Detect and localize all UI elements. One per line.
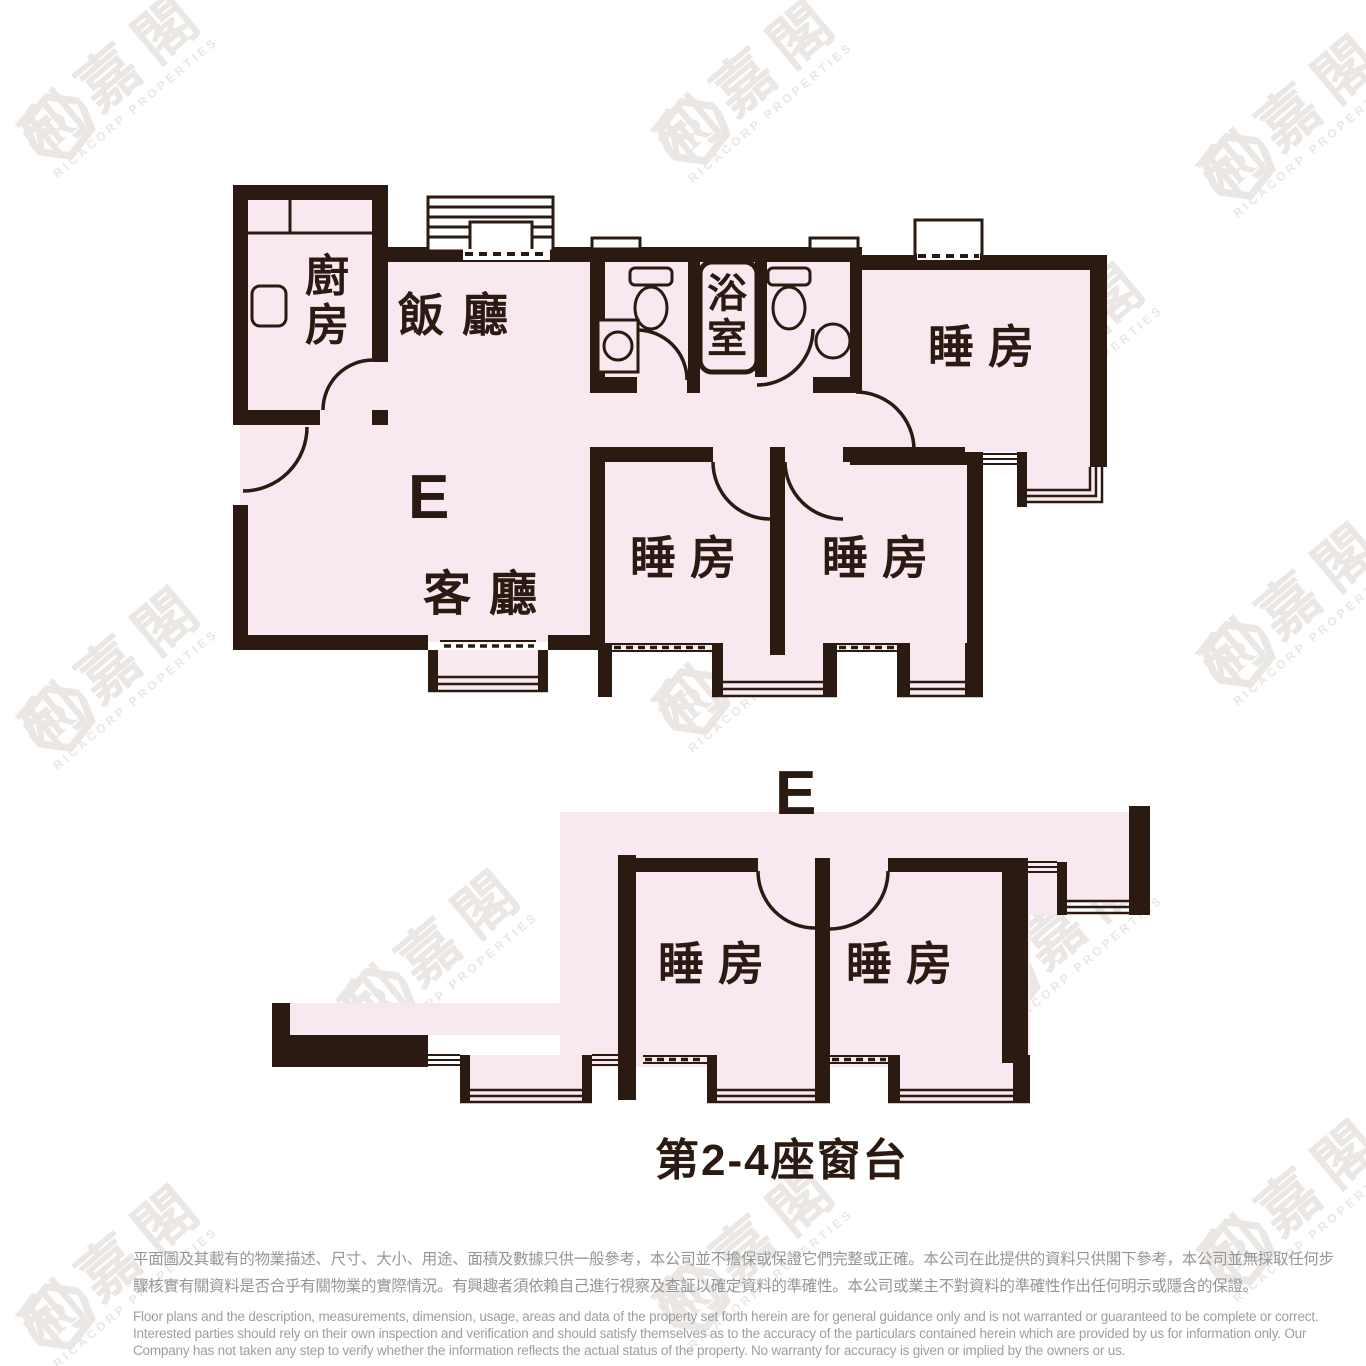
disclaimer-chinese-line-1: 平面圖及其載有的物業描述、尺寸、大小、用途、面積及數據只供一般參考，本公司並不擔… <box>133 1246 1313 1273</box>
toilet-bowl-right <box>773 287 805 329</box>
disclaimer-english-line-1: Floor plans and the description, measure… <box>133 1308 1313 1325</box>
disclaimer-chinese-line-2: 驟核實有關資料是否合乎有關物業的實際情況。有興趣者須依賴自己進行視察及查証以確定… <box>133 1273 1313 1300</box>
room-label-lower-bedroom-left: 睡房 <box>608 939 828 991</box>
floorplan-canvas: R 利嘉閣 RICACORP PROPERTIES R 利嘉閣 RICACORP… <box>0 0 1366 1366</box>
disclaimer-english-line-3: Company has not taken any step to verify… <box>133 1342 1313 1359</box>
sink-right <box>816 324 850 358</box>
unit-label-lower: E <box>775 758 816 829</box>
disclaimer: 平面圖及其載有的物業描述、尺寸、大小、用途、面積及數據只供一般參考，本公司並不擔… <box>133 1246 1313 1359</box>
room-label-living: 客廳 <box>379 568 599 622</box>
toilet-tank-left <box>630 268 672 285</box>
disclaimer-english-line-2: Interested parties should rely on their … <box>133 1325 1313 1342</box>
room-label-kitchen: 廚房 <box>305 252 355 351</box>
unit-label-upper: E <box>408 462 449 533</box>
plan-caption: 第2-4座窗台 <box>655 1124 909 1188</box>
toilet-tank-right <box>768 268 810 285</box>
room-label-bedroom-mid-right: 睡房 <box>772 533 992 585</box>
room-label-bedroom-mid-left: 睡房 <box>580 533 800 585</box>
room-label-lower-bedroom-right: 睡房 <box>796 939 1016 991</box>
toilet-bowl-left <box>635 287 667 329</box>
room-label-dining: 飯廳 <box>352 290 572 342</box>
room-label-bedroom-top-right: 睡房 <box>878 322 1098 374</box>
upper-plan <box>233 185 1107 697</box>
window-louvre <box>428 197 553 254</box>
room-label-bathroom: 浴室 <box>707 272 751 362</box>
kitchen-sink <box>252 286 286 326</box>
sink-left <box>604 332 632 360</box>
